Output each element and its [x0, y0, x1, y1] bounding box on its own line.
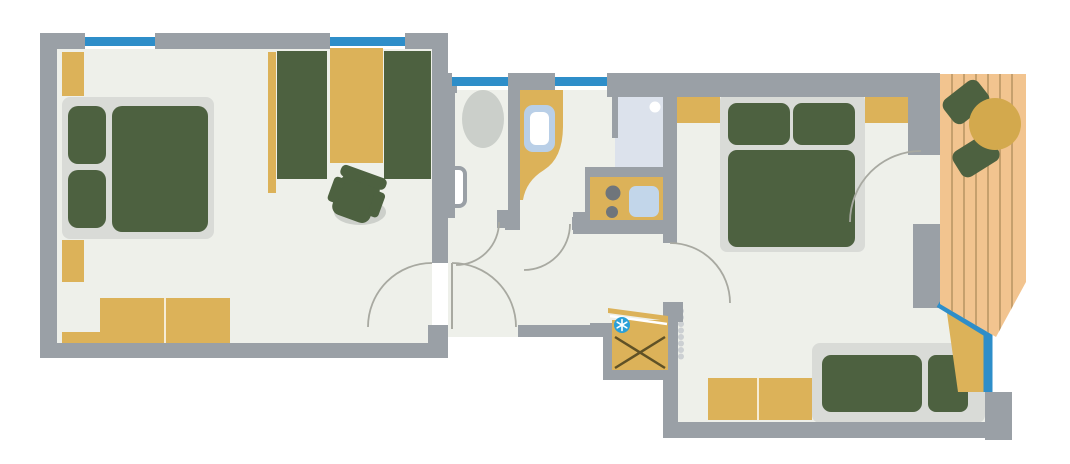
kitchen-sink	[629, 186, 659, 217]
floor-plan	[0, 0, 1070, 464]
wall-segment	[508, 73, 555, 90]
nightstand-right	[865, 97, 908, 123]
floor-balcony-doorway	[908, 150, 940, 224]
window	[330, 37, 405, 46]
toilet	[462, 90, 504, 148]
floor-doorway-bedroom-right	[663, 243, 677, 303]
wall-segment	[573, 220, 672, 234]
seating-bench-left	[277, 51, 327, 179]
desk	[330, 48, 383, 163]
wall-segment	[603, 337, 613, 369]
bed-duvet	[728, 150, 855, 247]
bed-pillow	[728, 103, 790, 145]
window	[85, 37, 155, 46]
wall-segment	[518, 325, 612, 337]
bench-side-strip	[268, 52, 276, 193]
shower-drain	[650, 102, 661, 113]
wall-segment	[913, 224, 940, 308]
wall-segment	[40, 343, 448, 358]
bed-duvet	[112, 106, 208, 232]
window-sill	[330, 33, 405, 37]
daybed-mattress	[822, 355, 922, 412]
bed-pillow	[68, 170, 106, 228]
window-sill	[85, 33, 155, 37]
wall-segment	[505, 217, 520, 230]
nightstand-left	[677, 97, 720, 123]
wall-segment	[607, 73, 940, 97]
window-sill	[452, 73, 508, 77]
wardrobe	[62, 52, 84, 96]
stove-burner	[606, 206, 618, 218]
washbasin	[530, 112, 549, 145]
wall-segment	[663, 90, 677, 243]
round-table	[969, 98, 1021, 150]
window-sill	[555, 73, 607, 77]
balcony	[939, 74, 1026, 340]
window	[555, 77, 607, 86]
wall-segment	[585, 167, 663, 177]
wall-segment	[612, 90, 618, 138]
wall-segment	[908, 73, 940, 155]
wall-cabinet	[62, 240, 84, 282]
seating-bench-right	[384, 51, 431, 179]
window	[452, 77, 508, 86]
wall-segment	[508, 90, 520, 218]
wall-segment	[155, 33, 330, 49]
wall-segment	[428, 325, 448, 345]
wall-segment	[40, 33, 57, 358]
wall-segment	[663, 422, 1012, 438]
wall-segment	[445, 90, 455, 218]
dresser	[708, 378, 812, 420]
ac-snowflake-icon	[614, 317, 630, 333]
bed-pillow	[68, 106, 106, 164]
stove-burner	[606, 186, 621, 201]
bed-pillow	[793, 103, 855, 145]
